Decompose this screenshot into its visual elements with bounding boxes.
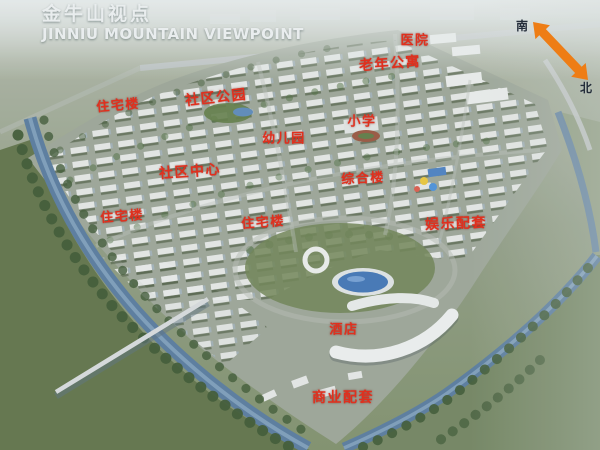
- map-label-residential-mid-left: 住宅楼: [100, 204, 145, 226]
- map-label-mixed-use-building: 综合楼: [341, 166, 385, 187]
- viewpoint-title-zh: 金牛山视点: [42, 4, 304, 26]
- viewpoint-title-en: JINNIU MOUNTAIN VIEWPOINT: [42, 26, 304, 43]
- compass-north-label: 北: [580, 79, 592, 96]
- map-label-hotel: 酒店: [329, 319, 358, 338]
- aerial-masterplan-view: 金牛山视点 JINNIU MOUNTAIN VIEWPOINT 南 北 医院 老…: [0, 0, 600, 450]
- map-label-primary-school: 小学: [347, 111, 376, 130]
- double-arrow: [533, 22, 588, 80]
- compass: 南 北: [510, 5, 600, 100]
- viewpoint-title: 金牛山视点 JINNIU MOUNTAIN VIEWPOINT: [42, 4, 304, 43]
- map-label-residential-upper-left: 住宅楼: [95, 93, 140, 116]
- map-label-hospital: 医院: [400, 30, 429, 49]
- map-label-entertainment-facilities: 娱乐配套: [425, 212, 488, 234]
- compass-south-label: 南: [516, 17, 528, 34]
- map-label-kindergarten: 幼儿园: [262, 128, 306, 147]
- map-label-residential-center: 住宅楼: [241, 210, 286, 232]
- map-label-commercial-facilities: 商业配套: [312, 387, 374, 407]
